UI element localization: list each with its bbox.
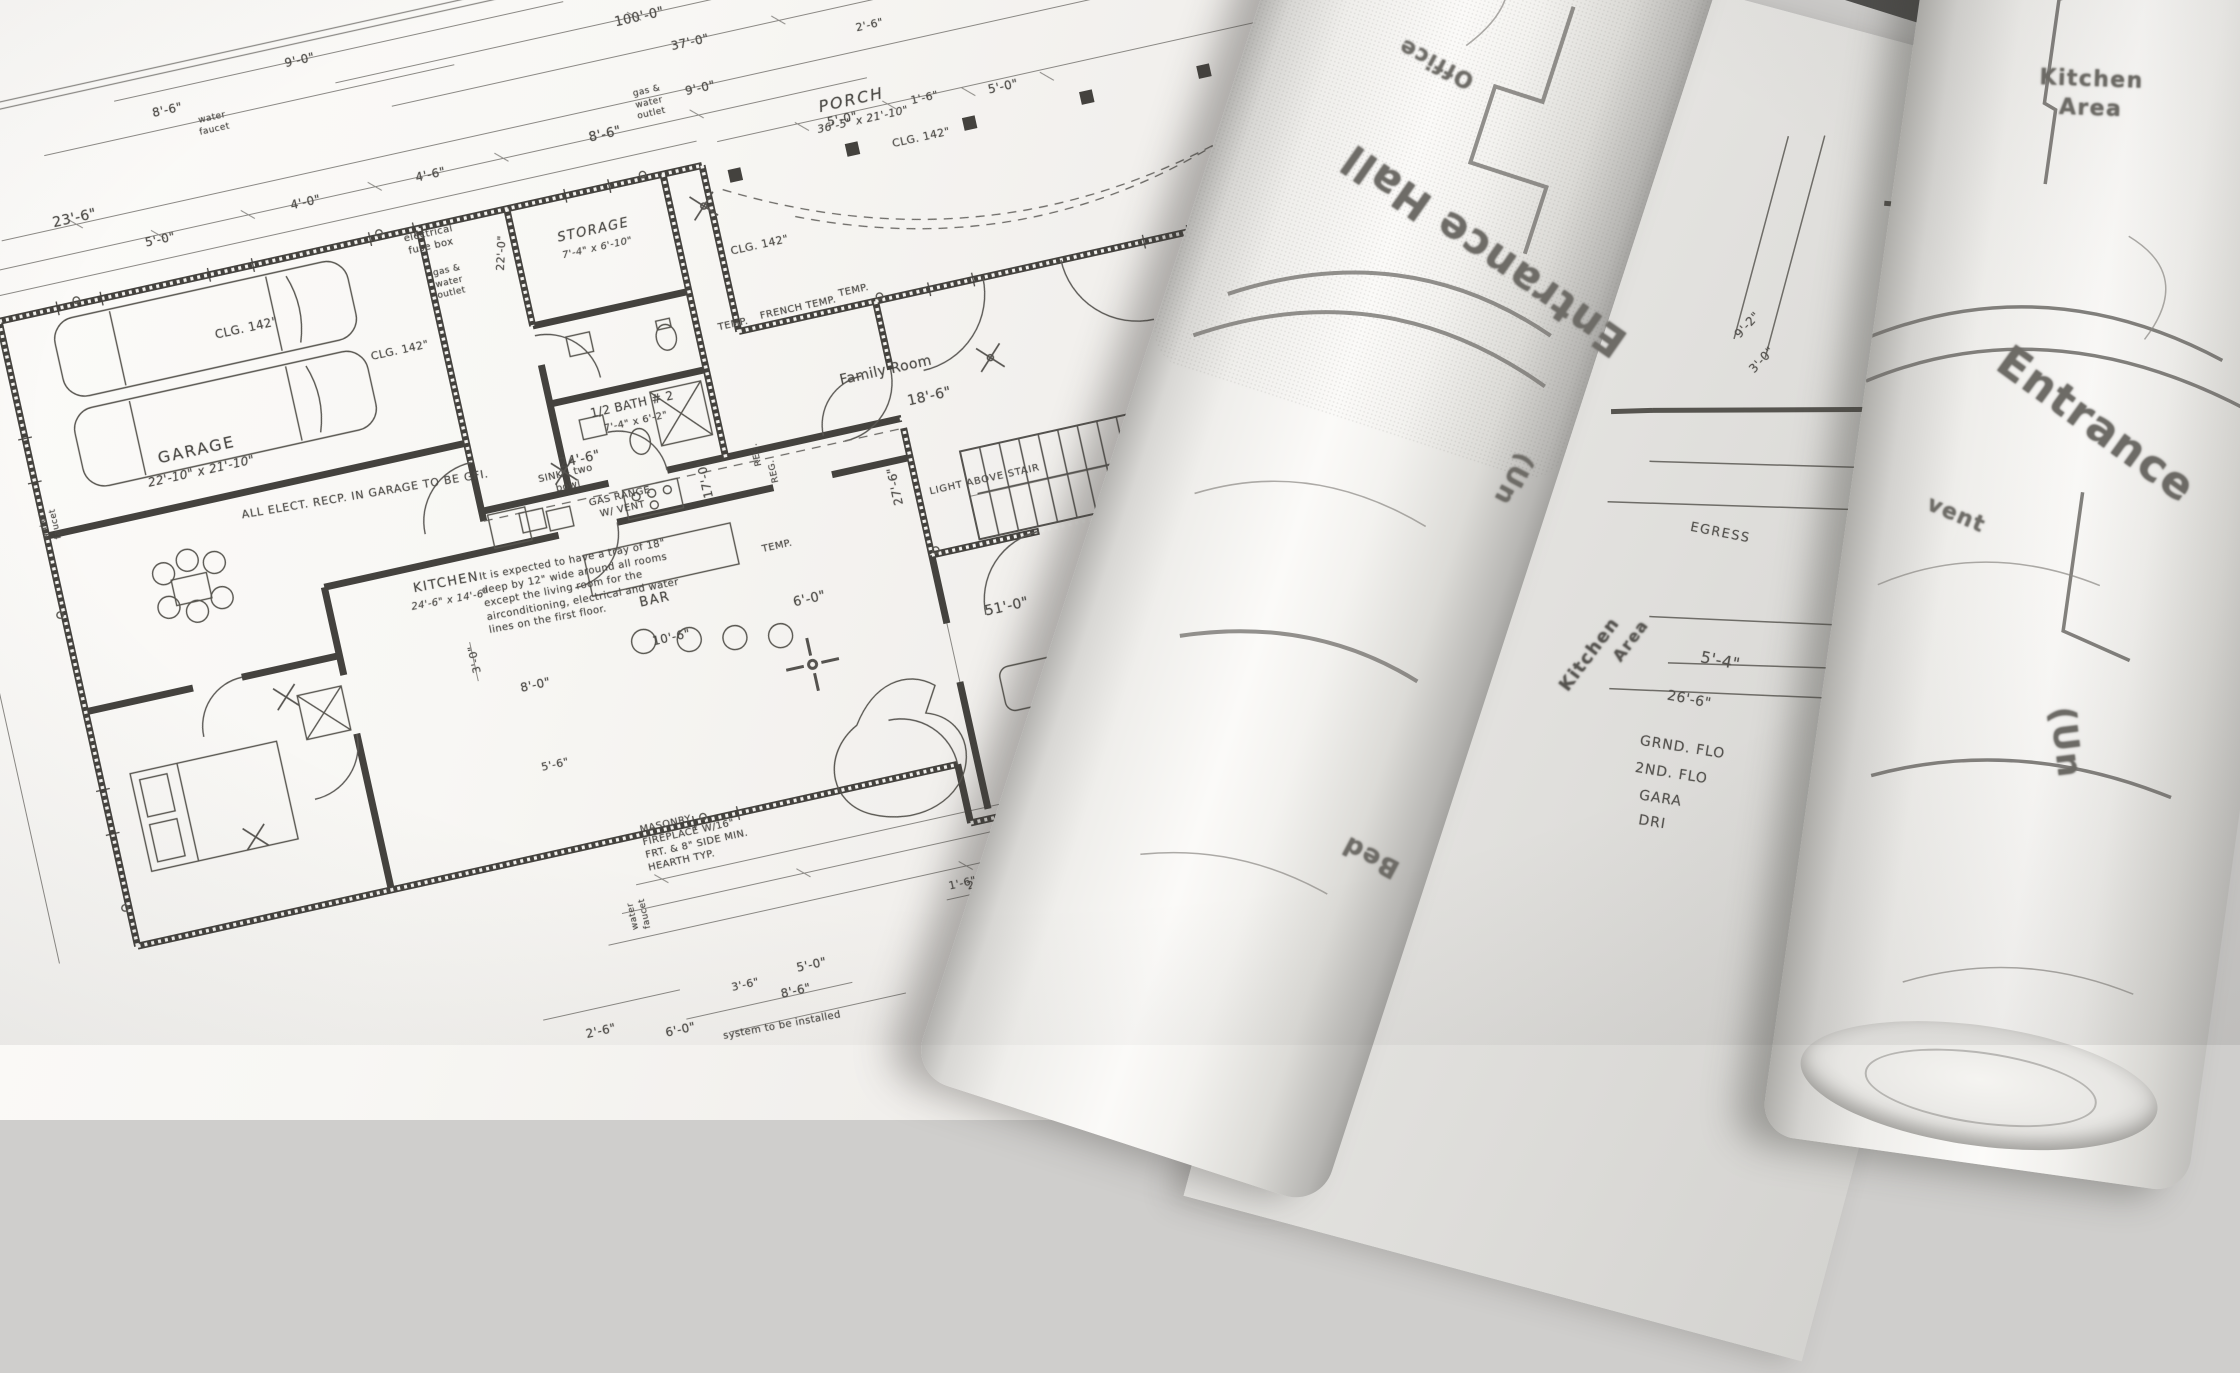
blueprint-photo: { "scene": { "type": "photograph", "subj… [0, 0, 2240, 1045]
dim-22-0: 22'-0" [494, 235, 509, 271]
unfinished-partial-right: (Un [2041, 704, 2089, 780]
kitchen-area-label: Kitchen Area [2038, 64, 2144, 125]
